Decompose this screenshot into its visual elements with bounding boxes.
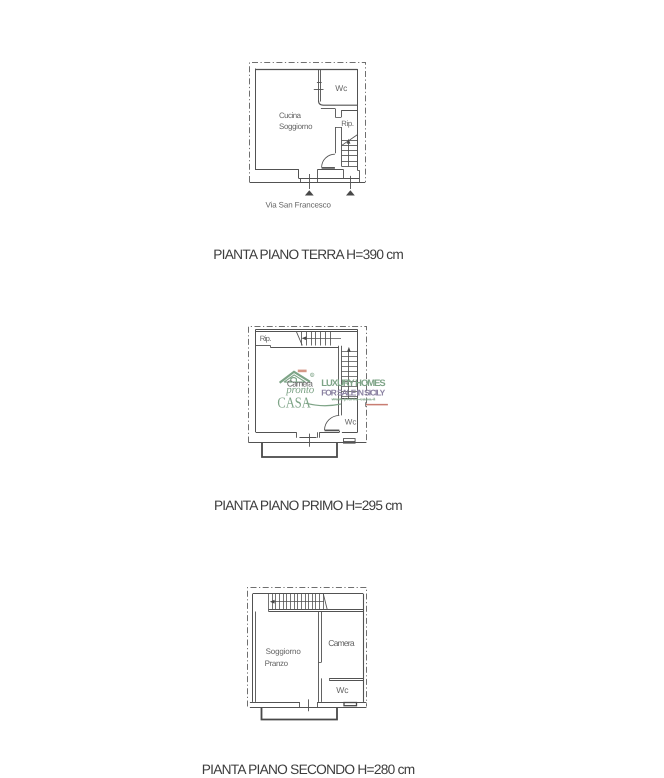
svg-text:Soggiorno: Soggiorno	[279, 122, 313, 131]
svg-text:LUXURY HOMES: LUXURY HOMES	[321, 377, 386, 388]
svg-text:Pranzo: Pranzo	[265, 659, 289, 668]
svg-text:Rip.: Rip.	[260, 334, 272, 343]
svg-text:www.pronto-casa.it: www.pronto-casa.it	[332, 397, 376, 402]
svg-text:PIANTA PIANO PRIMO H=295 cm: PIANTA PIANO PRIMO H=295 cm	[214, 498, 403, 513]
svg-text:Wc: Wc	[335, 83, 347, 93]
svg-text:Soggiorno: Soggiorno	[266, 647, 302, 656]
svg-text:Wc: Wc	[345, 418, 357, 427]
svg-text:Cucina: Cucina	[279, 111, 302, 120]
svg-text:Camera: Camera	[328, 638, 355, 648]
svg-text:Wc: Wc	[336, 685, 349, 695]
svg-text:PIANTA PIANO SECONDO H=280 cm: PIANTA PIANO SECONDO H=280 cm	[202, 762, 415, 777]
svg-text:PIANTA PIANO TERRA H=390 cm: PIANTA PIANO TERRA H=390 cm	[213, 247, 404, 262]
svg-text:CASA: CASA	[277, 395, 310, 412]
svg-text:Via San Francesco: Via San Francesco	[266, 201, 332, 210]
svg-text:Rip.: Rip.	[341, 119, 354, 128]
